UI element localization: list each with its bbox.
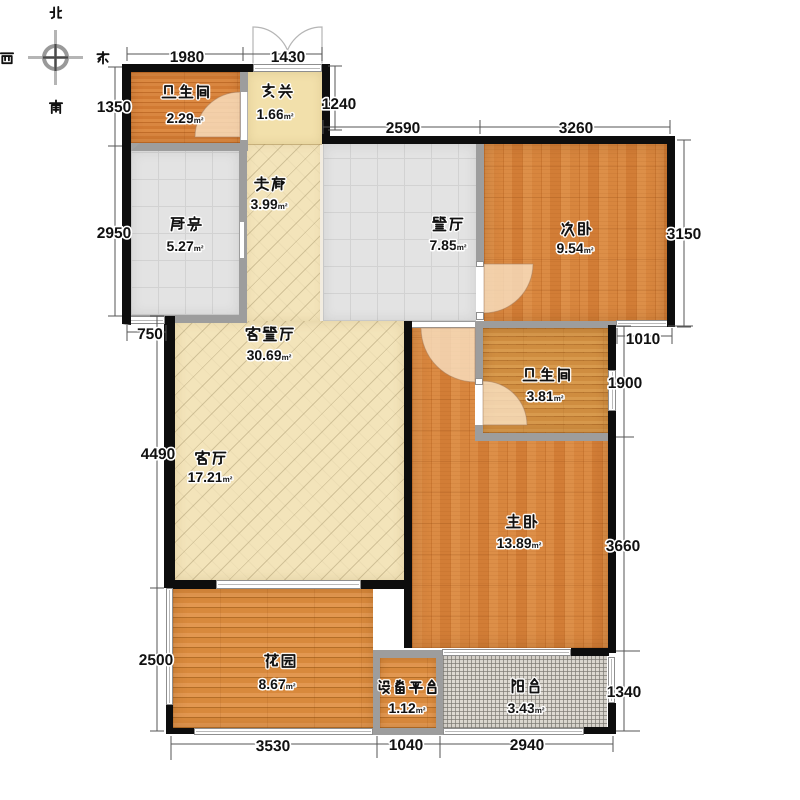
svg-text:3530: 3530	[256, 738, 290, 755]
svg-text:1340: 1340	[607, 684, 641, 701]
svg-text:5.27m²: 5.27m²	[166, 238, 203, 254]
svg-text:3.81m²: 3.81m²	[526, 388, 563, 404]
svg-text:3.99m²: 3.99m²	[250, 196, 287, 212]
svg-text:1.66m²: 1.66m²	[256, 106, 293, 122]
svg-text:2500: 2500	[139, 652, 173, 669]
svg-text:1.12m²: 1.12m²	[388, 700, 425, 716]
svg-text:2590: 2590	[386, 120, 420, 137]
svg-text:2950: 2950	[97, 225, 131, 242]
svg-text:1040: 1040	[389, 737, 423, 754]
svg-text:2.29m²: 2.29m²	[166, 110, 203, 126]
svg-text:1240: 1240	[322, 96, 356, 113]
svg-text:1010: 1010	[626, 331, 660, 348]
svg-text:17.21m²: 17.21m²	[188, 469, 233, 485]
svg-text:3260: 3260	[559, 120, 593, 137]
svg-text:13.89m²: 13.89m²	[497, 535, 542, 551]
svg-text:1980: 1980	[170, 49, 204, 66]
svg-text:9.54m²: 9.54m²	[556, 240, 593, 256]
svg-text:4490: 4490	[141, 446, 175, 463]
svg-text:1900: 1900	[608, 375, 642, 392]
svg-text:2940: 2940	[510, 737, 544, 754]
svg-text:7.85m²: 7.85m²	[429, 237, 466, 253]
svg-text:3.43m²: 3.43m²	[507, 700, 544, 716]
svg-text:1430: 1430	[271, 49, 305, 66]
svg-text:750: 750	[137, 326, 163, 343]
svg-text:1350: 1350	[97, 99, 131, 116]
svg-text:8.67m²: 8.67m²	[258, 676, 295, 692]
svg-text:30.69m²: 30.69m²	[247, 347, 292, 363]
svg-text:3150: 3150	[667, 226, 701, 243]
svg-text:3660: 3660	[606, 538, 640, 555]
